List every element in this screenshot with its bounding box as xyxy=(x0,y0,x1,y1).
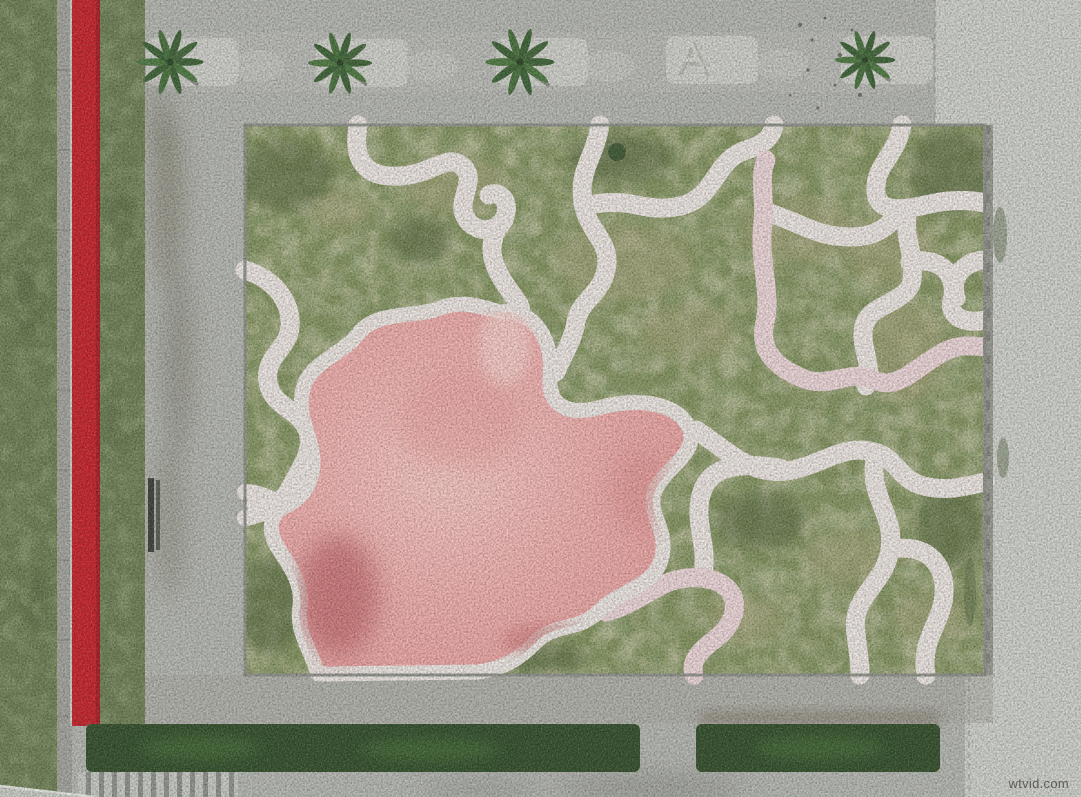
grain-overlay xyxy=(0,0,1081,797)
aerial-photo-viewport: wtvid.com xyxy=(0,0,1081,797)
watermark: wtvid.com xyxy=(1009,776,1070,791)
scene-graphic xyxy=(0,0,1081,797)
